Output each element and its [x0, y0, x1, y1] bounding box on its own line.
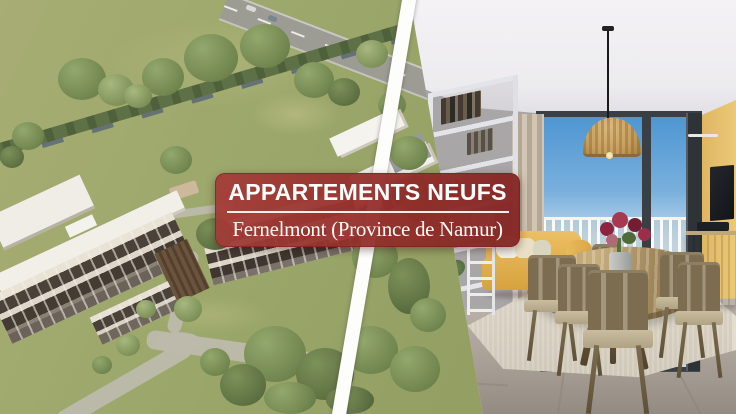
tv-screen [710, 165, 734, 221]
banner-title: APPARTEMENTS NEUFS [228, 181, 506, 204]
tree [184, 34, 238, 82]
flower-leaves [622, 232, 636, 244]
tree [240, 24, 290, 68]
tree [124, 84, 152, 108]
chair-back [588, 270, 648, 333]
apartment-building-a [0, 186, 207, 341]
chair [588, 270, 648, 414]
chair-leg [676, 322, 687, 378]
tree [200, 348, 230, 376]
chair-leg [636, 345, 650, 414]
tree [136, 300, 156, 318]
tree [160, 146, 192, 174]
pendant-lamp-bulb [606, 152, 613, 159]
flower [638, 228, 651, 241]
books [467, 128, 493, 156]
chair-leg [586, 345, 600, 414]
books [441, 90, 481, 125]
tree [92, 356, 112, 374]
tree [410, 298, 446, 332]
pendant-lamp-canopy [602, 26, 614, 31]
chair-leg [556, 322, 566, 376]
chair-back [678, 262, 720, 313]
tree [390, 136, 428, 170]
tree [174, 296, 202, 322]
flower [612, 212, 628, 228]
chair-leg [527, 310, 537, 361]
promo-banner: APPARTEMENTS NEUFS Fernelmont (Province … [215, 173, 520, 247]
tree [12, 122, 44, 150]
tree [356, 40, 388, 68]
tree [116, 334, 140, 356]
flower [606, 234, 618, 246]
side-shelf [467, 245, 495, 315]
tree [264, 382, 316, 414]
chair-seat [675, 311, 724, 325]
banner-subtitle: Fernelmont (Province de Namur) [232, 219, 502, 240]
chair-leg [659, 307, 669, 358]
tree [0, 146, 24, 168]
banner-divider-line [227, 211, 509, 213]
pendant-lamp-cord [607, 28, 609, 122]
tree [390, 346, 440, 392]
chair [678, 262, 720, 378]
media-console [697, 222, 729, 231]
promo-image: APPARTEMENTS NEUFS Fernelmont (Province … [0, 0, 736, 414]
curtain-rod [688, 134, 718, 137]
